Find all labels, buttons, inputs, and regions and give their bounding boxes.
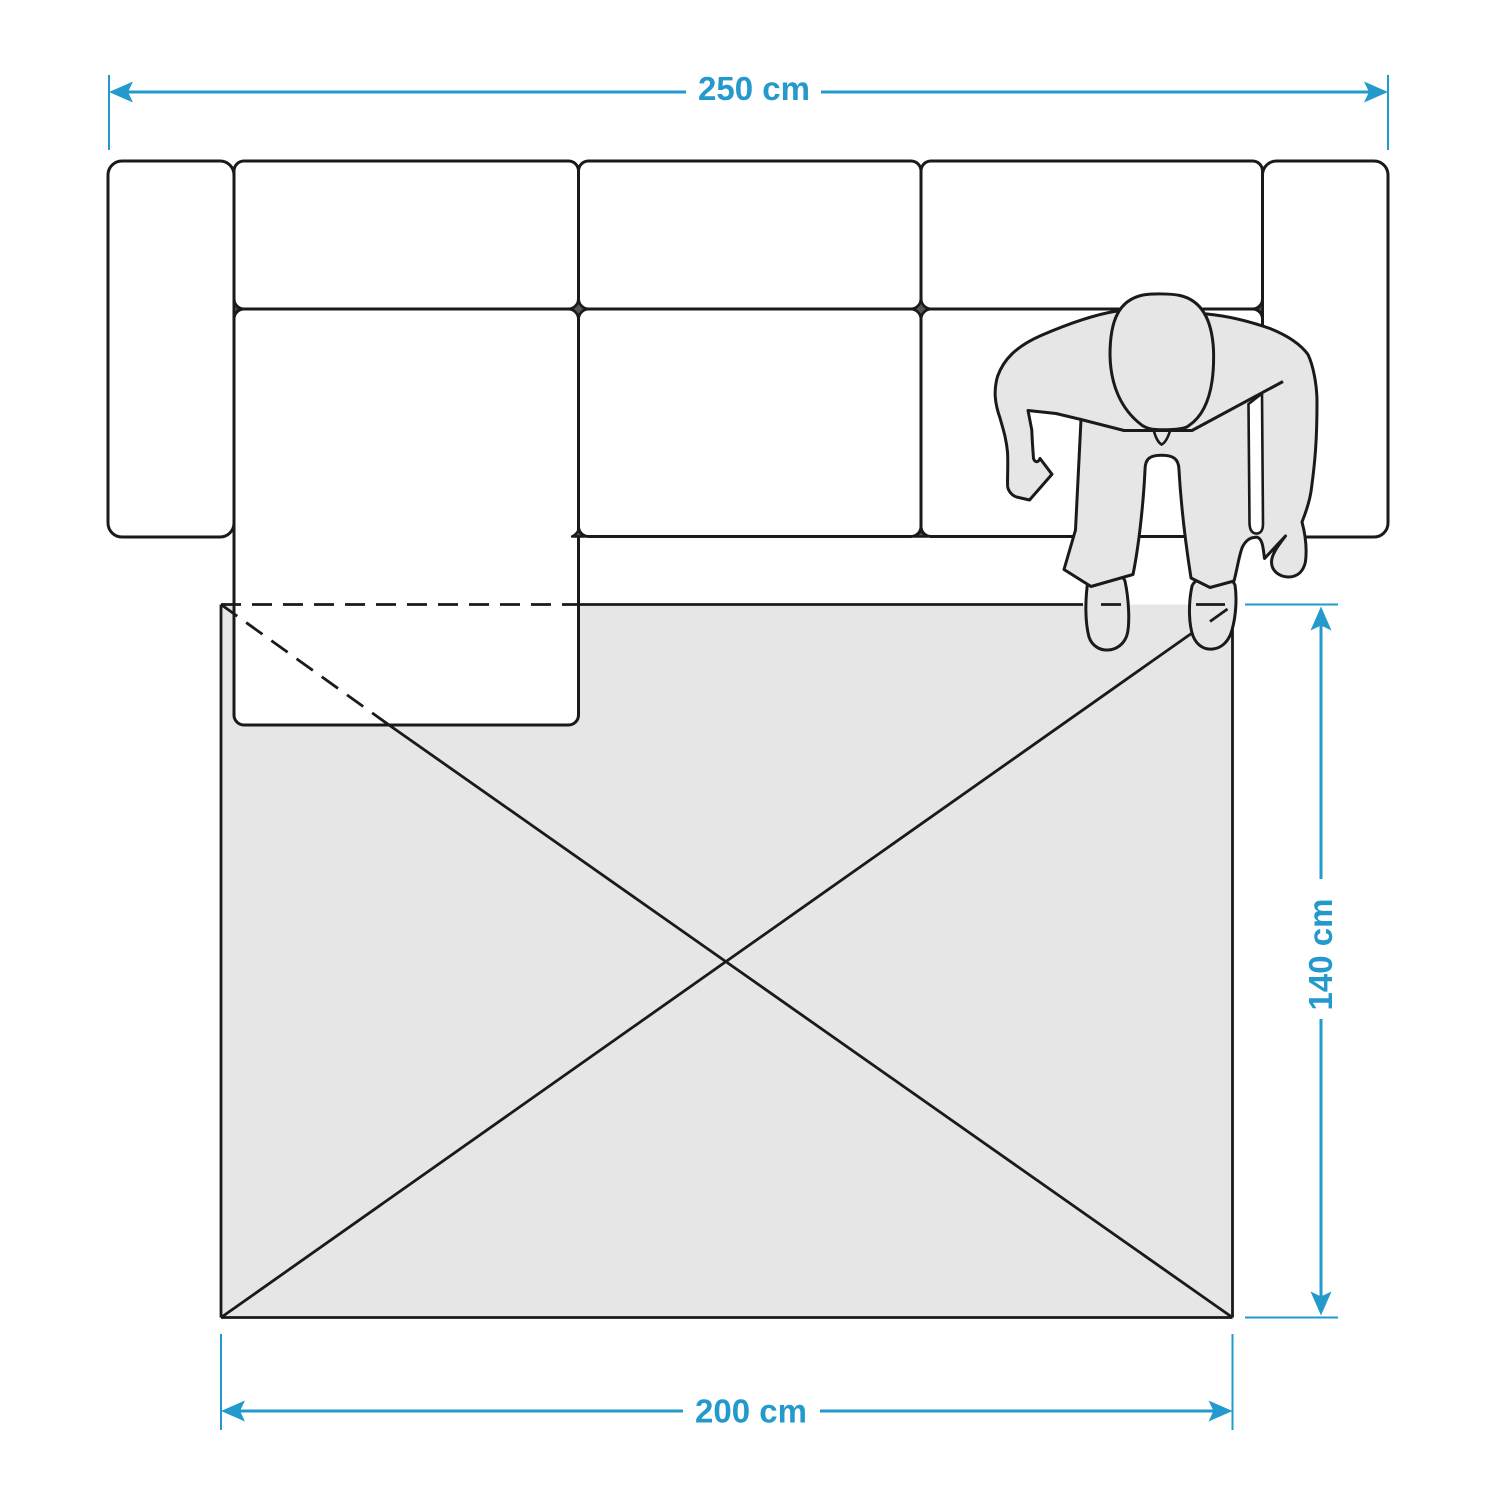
svg-text:250 cm: 250 cm xyxy=(698,70,810,107)
svg-text:200 cm: 200 cm xyxy=(695,1393,807,1430)
svg-text:140 cm: 140 cm xyxy=(1302,899,1339,1011)
